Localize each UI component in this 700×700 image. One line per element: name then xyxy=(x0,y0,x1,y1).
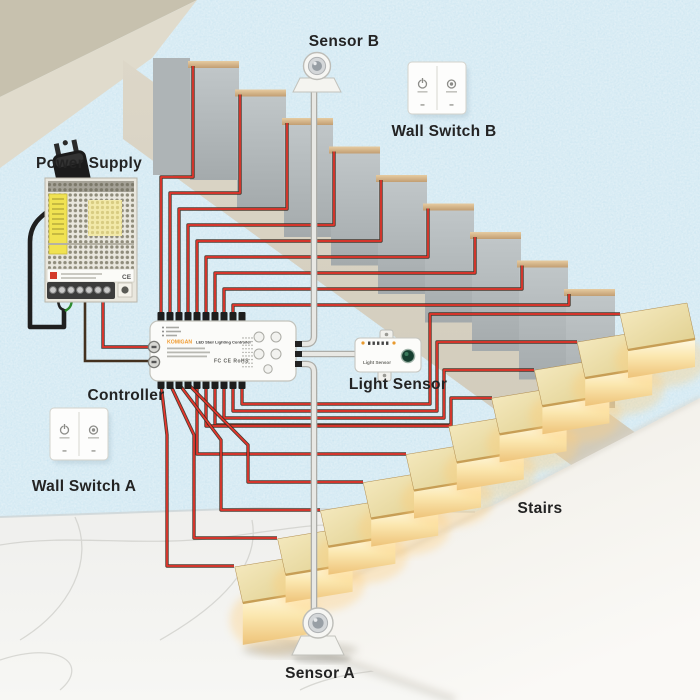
sensor-port xyxy=(295,361,302,367)
upper-step-nosing xyxy=(376,175,427,182)
switch-sublabel-bar xyxy=(418,91,428,93)
dc-port-slot xyxy=(152,346,157,348)
sensor-port xyxy=(295,351,302,357)
upper-step-riser xyxy=(378,182,427,294)
photocell-icon xyxy=(401,349,414,362)
controller-unit: KOMIGAN LED Stair Lighting Controller FC… xyxy=(148,321,302,381)
rocker-indicator xyxy=(63,450,67,452)
vent-dot xyxy=(248,348,249,349)
vent-dot xyxy=(251,341,252,342)
upper-step-riser xyxy=(284,125,333,237)
vent-dot xyxy=(242,359,243,360)
psu-top-vent xyxy=(48,181,134,192)
vent-dot xyxy=(248,352,249,353)
vent-dot xyxy=(245,355,246,356)
diagram-canvas: CE KOMIGAN LED Stair Lighting Controller… xyxy=(0,0,700,700)
psu-brand-mark xyxy=(50,272,57,279)
screw-icon xyxy=(385,333,389,337)
label-power-supply: Power Supply xyxy=(36,155,142,172)
switch-sublabel-bar xyxy=(60,437,70,439)
stair-lighting-diagram: CE KOMIGAN LED Stair Lighting Controller… xyxy=(0,0,700,700)
psu-seam xyxy=(48,243,134,245)
upper-step-nosing xyxy=(470,232,521,239)
rocker-indicator xyxy=(421,104,425,106)
vent-dot xyxy=(242,337,243,338)
vent-dot xyxy=(242,348,243,349)
psu-bottom-label xyxy=(47,269,134,282)
vent-dot xyxy=(248,337,249,338)
vent-dot xyxy=(251,355,252,356)
stair-step-lit xyxy=(615,303,700,387)
vent-dot xyxy=(251,363,252,364)
vent-dot xyxy=(245,352,246,353)
brightness-icon-dot xyxy=(92,428,95,431)
vent-dot xyxy=(251,337,252,338)
pir-lens-icon xyxy=(312,61,322,71)
label-wall-switch-b: Wall Switch B xyxy=(392,123,497,140)
vent-dot xyxy=(245,348,246,349)
landing-side-face xyxy=(153,58,190,175)
upper-step-nosing xyxy=(282,118,333,125)
controller-button xyxy=(254,349,264,359)
lens-glint xyxy=(313,62,316,65)
vent-dot xyxy=(245,345,246,346)
upper-step-nosing xyxy=(235,90,286,97)
vent-dot xyxy=(251,345,252,346)
controller-button xyxy=(271,349,281,359)
sensor-shadow xyxy=(293,654,351,664)
vent-dot xyxy=(248,366,249,367)
controller-button xyxy=(264,365,272,373)
rocker-indicator xyxy=(92,450,96,452)
wall-switch-b xyxy=(408,62,469,118)
vent-dot xyxy=(251,352,252,353)
vent-dot xyxy=(248,359,249,360)
vent-dot xyxy=(245,359,246,360)
vent-dot xyxy=(242,366,243,367)
controller-side-ports xyxy=(295,341,302,367)
controller-cert-marks: FC CE RoHS xyxy=(214,359,249,365)
label-sensor-b: Sensor B xyxy=(309,33,379,50)
brightness-icon-dot xyxy=(450,82,453,85)
vent-dot xyxy=(251,359,252,360)
label-light-sensor: Light Sensor xyxy=(349,376,447,393)
vent-dot xyxy=(248,341,249,342)
upper-step-riser xyxy=(472,239,521,351)
upper-step-nosing xyxy=(517,261,568,268)
vent-dot xyxy=(242,352,243,353)
label-wall-switch-a: Wall Switch A xyxy=(32,478,136,495)
vent-dot xyxy=(245,366,246,367)
upper-step-nosing xyxy=(423,204,474,211)
vent-dot xyxy=(248,363,249,364)
vent-dot xyxy=(242,363,243,364)
sensor-base xyxy=(292,636,344,655)
vent-dot xyxy=(251,366,252,367)
vent-dot xyxy=(242,345,243,346)
controller-button xyxy=(254,332,264,342)
vent-dot xyxy=(251,348,252,349)
photocell-glint xyxy=(405,352,409,356)
upper-step-riser xyxy=(331,154,380,266)
upper-step-riser xyxy=(519,268,568,380)
controller-button xyxy=(271,332,281,342)
upper-step-riser xyxy=(237,97,286,209)
vent-dot xyxy=(242,355,243,356)
switch-sublabel-bar xyxy=(88,437,99,439)
vent-dot xyxy=(242,341,243,342)
vent-dot xyxy=(245,363,246,364)
label-controller: Controller xyxy=(87,387,164,404)
vent-dot xyxy=(245,341,246,342)
light-sensor-body-label: Light Sensor xyxy=(363,360,391,365)
label-stairs: Stairs xyxy=(518,500,563,517)
label-sensor-a: Sensor A xyxy=(285,665,355,682)
controller-spec-lines xyxy=(167,348,210,358)
lens-glint xyxy=(314,618,318,622)
power-supply-unit: CE xyxy=(45,178,137,302)
wall-switch-a xyxy=(50,408,111,464)
psu-bright-panel xyxy=(88,200,122,236)
switch-sublabel-bar xyxy=(446,91,457,93)
upper-step-riser xyxy=(190,68,239,180)
vent-dot xyxy=(245,337,246,338)
psu-pot-dial-icon xyxy=(121,286,128,293)
rocker-indicator xyxy=(450,104,454,106)
vent-dot xyxy=(248,345,249,346)
vent-dot xyxy=(248,355,249,356)
upper-step-nosing xyxy=(188,61,239,68)
upper-step-nosing xyxy=(329,147,380,154)
controller-brand: KOMIGAN xyxy=(167,340,192,346)
ce-mark-icon: CE xyxy=(122,274,132,281)
upper-step-nosing xyxy=(564,289,615,296)
sensor-port xyxy=(295,341,302,347)
dc-port-slot xyxy=(152,361,157,363)
